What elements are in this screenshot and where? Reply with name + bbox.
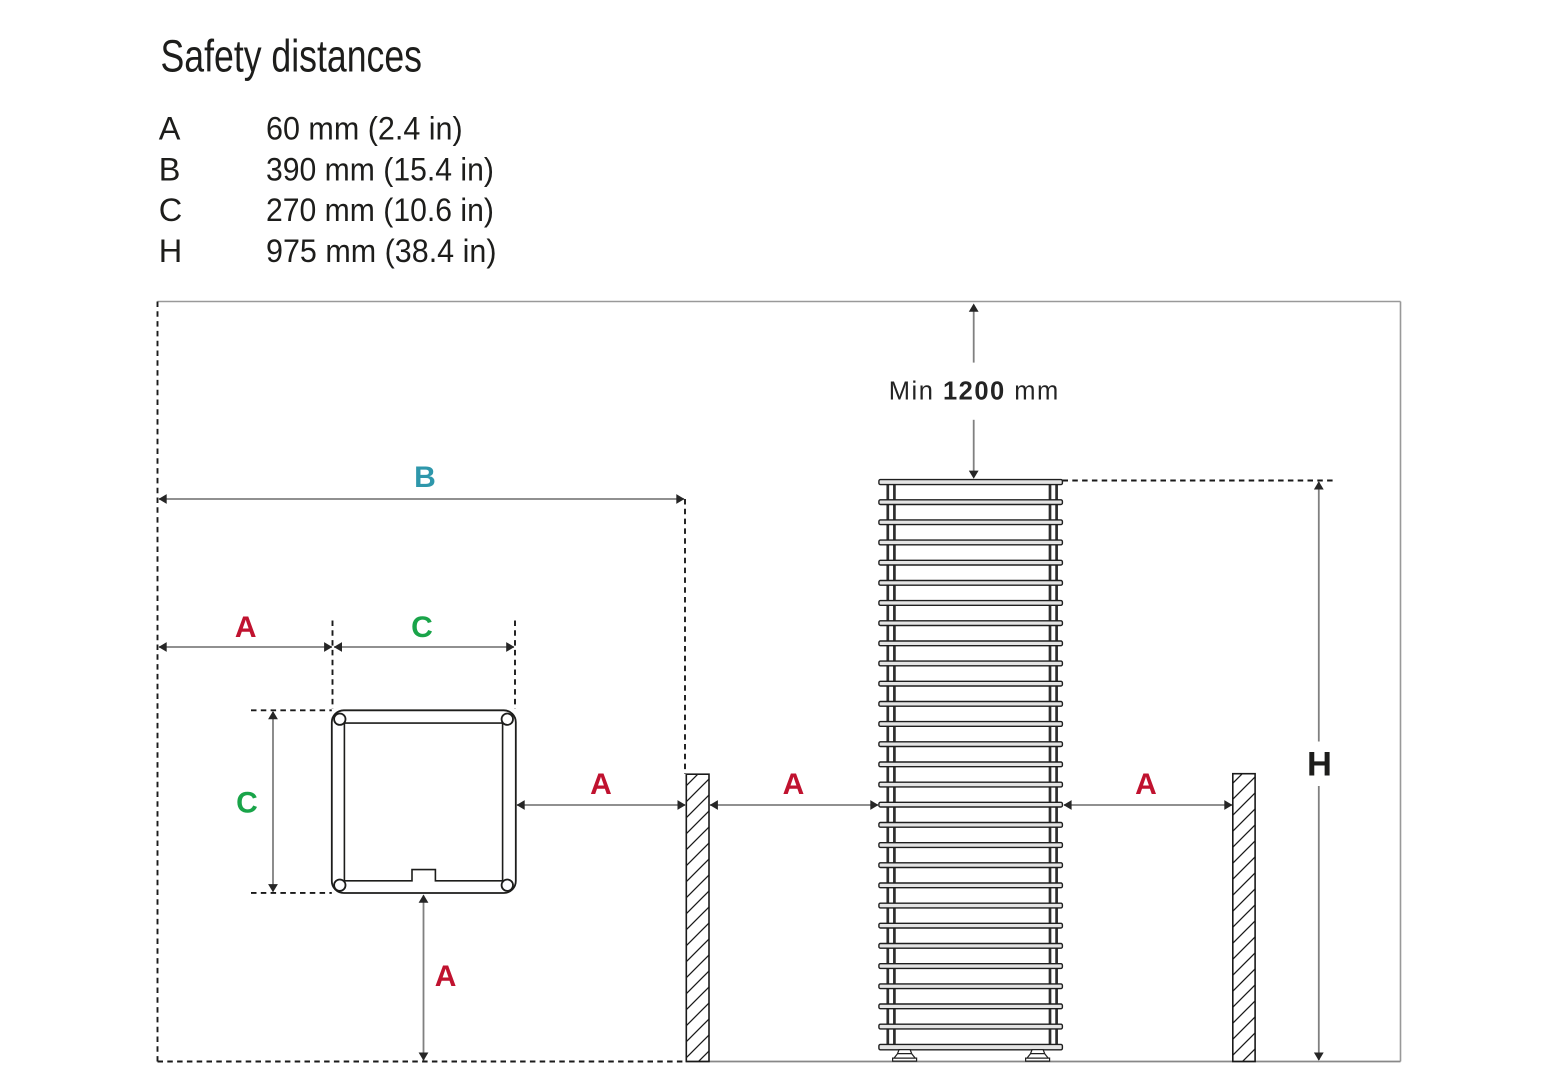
svg-text:H: H — [159, 233, 182, 269]
svg-text:390 mm (15.4 in): 390 mm (15.4 in) — [266, 151, 494, 187]
svg-text:60 mm (2.4 in): 60 mm (2.4 in) — [266, 111, 463, 147]
svg-text:C: C — [236, 786, 258, 819]
svg-text:975 mm (38.4 in): 975 mm (38.4 in) — [266, 233, 497, 269]
svg-text:B: B — [414, 461, 436, 494]
svg-text:A: A — [783, 768, 805, 801]
svg-text:A: A — [435, 960, 457, 993]
svg-text:Safety distances: Safety distances — [161, 30, 423, 81]
svg-text:A: A — [159, 111, 181, 147]
svg-text:H: H — [1307, 745, 1332, 783]
svg-text:C: C — [411, 611, 433, 644]
svg-text:270 mm (10.6 in): 270 mm (10.6 in) — [266, 192, 494, 228]
svg-text:B: B — [159, 151, 181, 187]
svg-text:A: A — [235, 611, 257, 644]
svg-text:Min 1200 mm: Min 1200 mm — [889, 377, 1060, 405]
svg-text:A: A — [1135, 768, 1157, 801]
svg-text:C: C — [159, 192, 182, 228]
svg-text:A: A — [590, 768, 612, 801]
